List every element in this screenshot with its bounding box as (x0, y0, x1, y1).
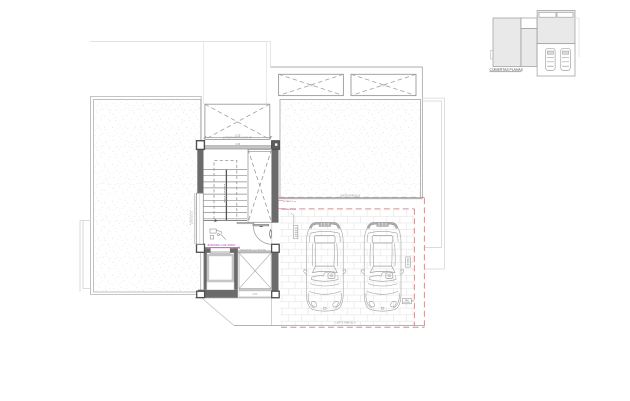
svg-text:S/PLANO 1:xx: S/PLANO 1:xx (283, 208, 297, 211)
svg-text:LIMITE PARCELA: LIMITE PARCELA (335, 321, 356, 324)
svg-text:HORM.: HORM. (404, 302, 411, 304)
svg-text:S/PLANO 1:xx: S/PLANO 1:xx (283, 200, 297, 203)
svg-text:CUBIERTAS PLANAS: CUBIERTAS PLANAS (489, 68, 523, 72)
svg-text:LIMITE PARCELA: LIMITE PARCELA (340, 194, 361, 197)
svg-text:2.10: 2.10 (381, 83, 387, 87)
svg-text:0.30: 0.30 (235, 143, 240, 146)
svg-text:0.60: 0.60 (253, 294, 258, 296)
svg-text:6.75: 6.75 (235, 133, 241, 137)
svg-text:2.10: 2.10 (308, 83, 314, 87)
svg-text:BARANDILLA DE VIDRIO: BARANDILLA DE VIDRIO (208, 244, 236, 247)
